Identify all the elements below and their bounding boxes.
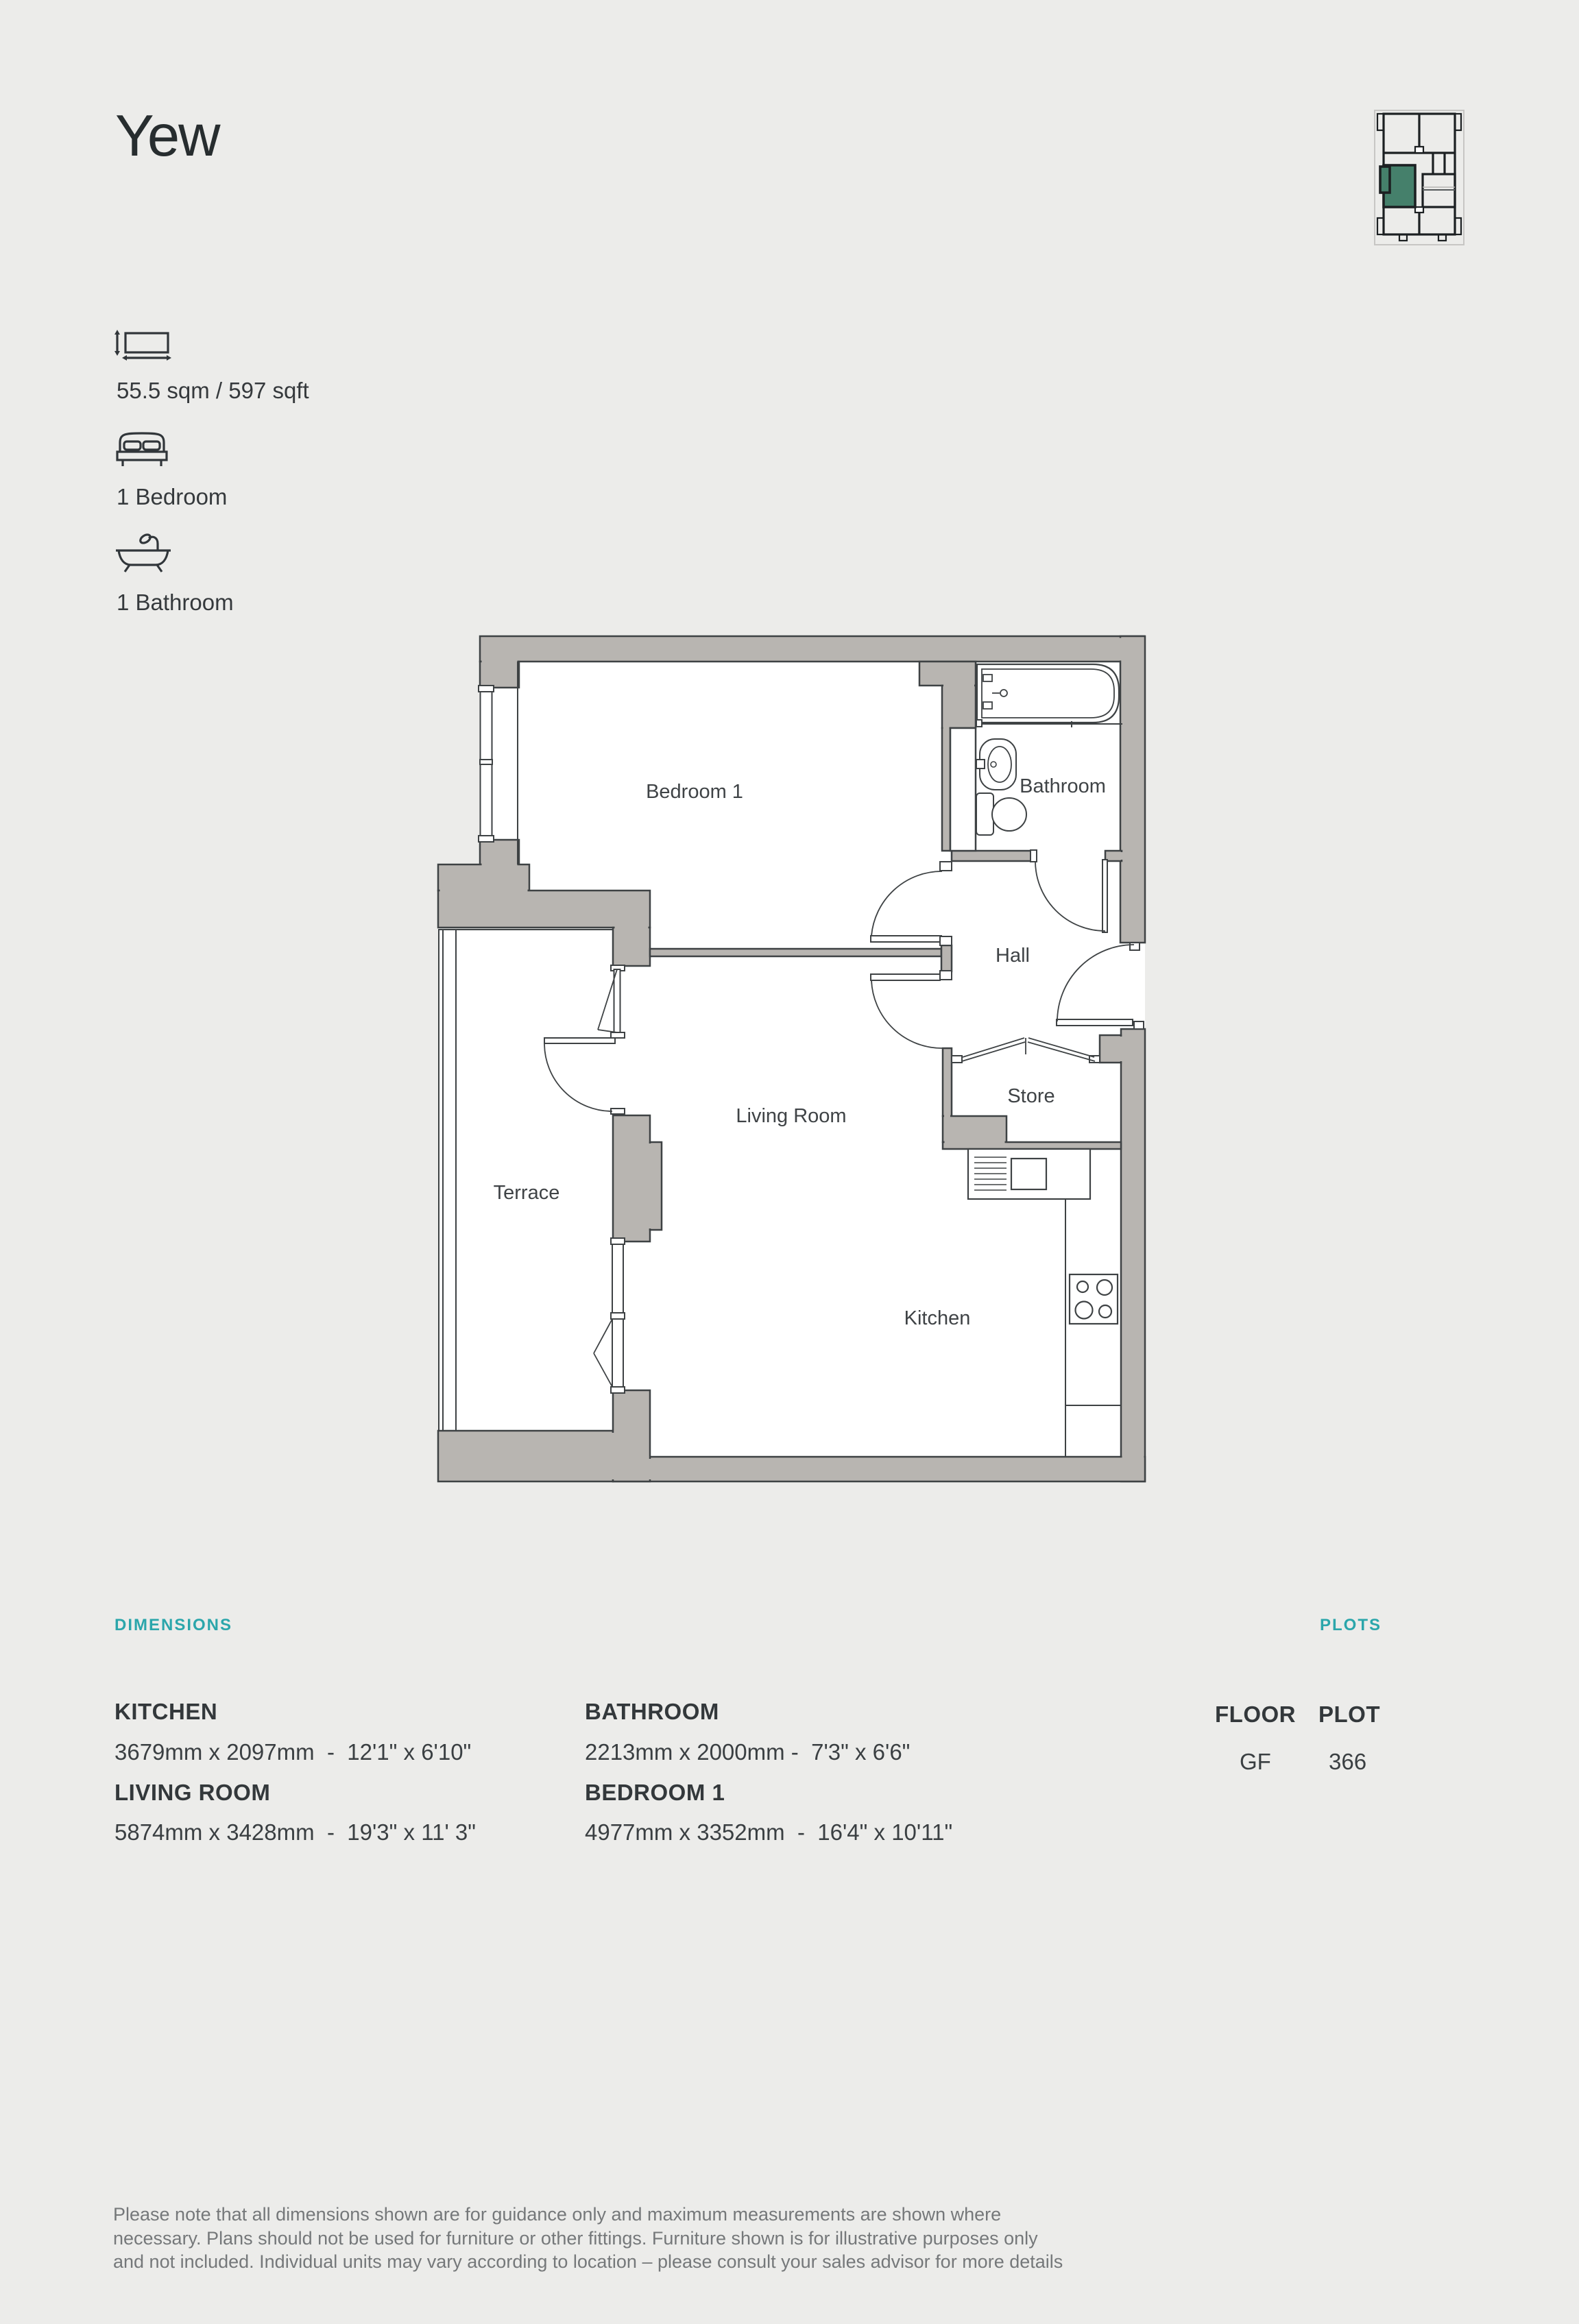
svg-text:Bedroom 1: Bedroom 1	[646, 781, 743, 803]
svg-text:Living Room: Living Room	[736, 1105, 846, 1127]
svg-text:Kitchen: Kitchen	[904, 1307, 971, 1329]
svg-text:Hall: Hall	[996, 945, 1030, 967]
svg-text:Store: Store	[1007, 1085, 1054, 1107]
svg-text:Terrace: Terrace	[494, 1182, 560, 1204]
svg-text:Bathroom: Bathroom	[1020, 775, 1106, 797]
